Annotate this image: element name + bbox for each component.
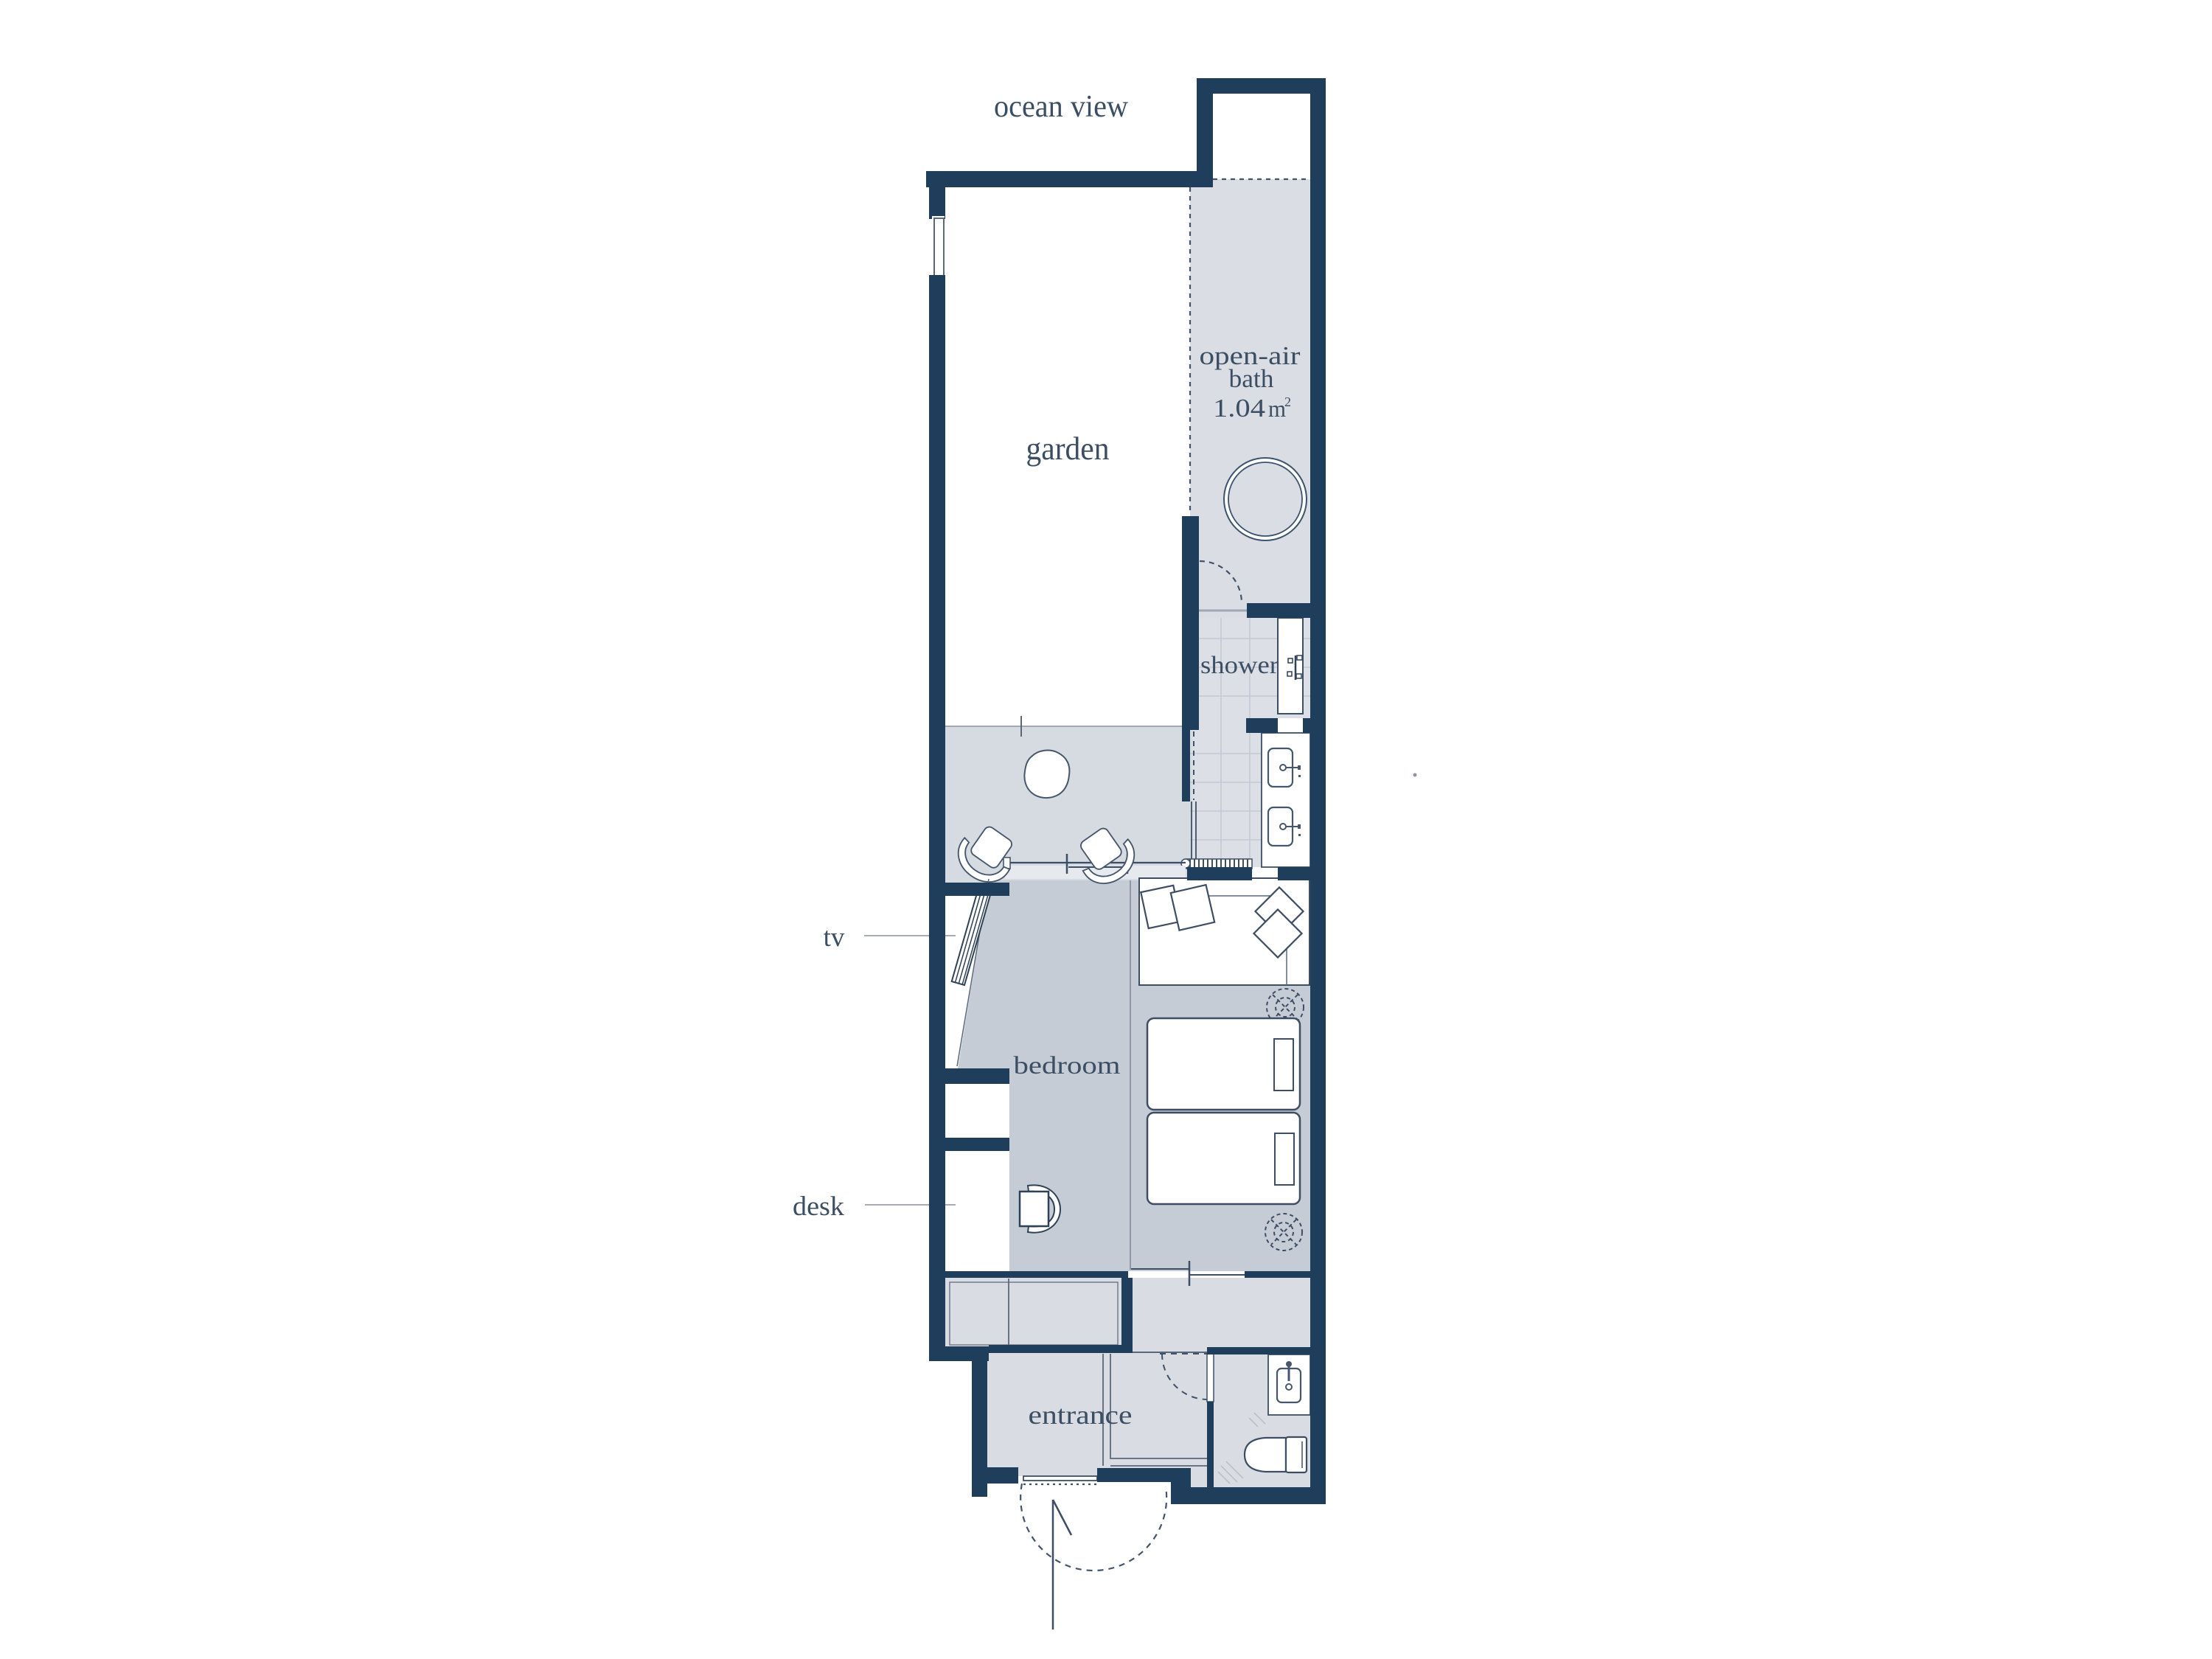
svg-text:bedroom: bedroom [1014,1052,1121,1079]
svg-text:m: m [1268,395,1286,422]
svg-text:1.04: 1.04 [1213,394,1265,422]
svg-text:2: 2 [1284,394,1291,409]
svg-text:bath: bath [1229,364,1274,393]
svg-text:desk: desk [793,1192,845,1222]
svg-text:garden: garden [1026,431,1110,467]
svg-text:entrance: entrance [1029,1400,1133,1430]
svg-text:ocean view: ocean view [994,90,1129,124]
svg-text:tv: tv [824,922,845,953]
svg-text:shower: shower [1200,652,1279,679]
